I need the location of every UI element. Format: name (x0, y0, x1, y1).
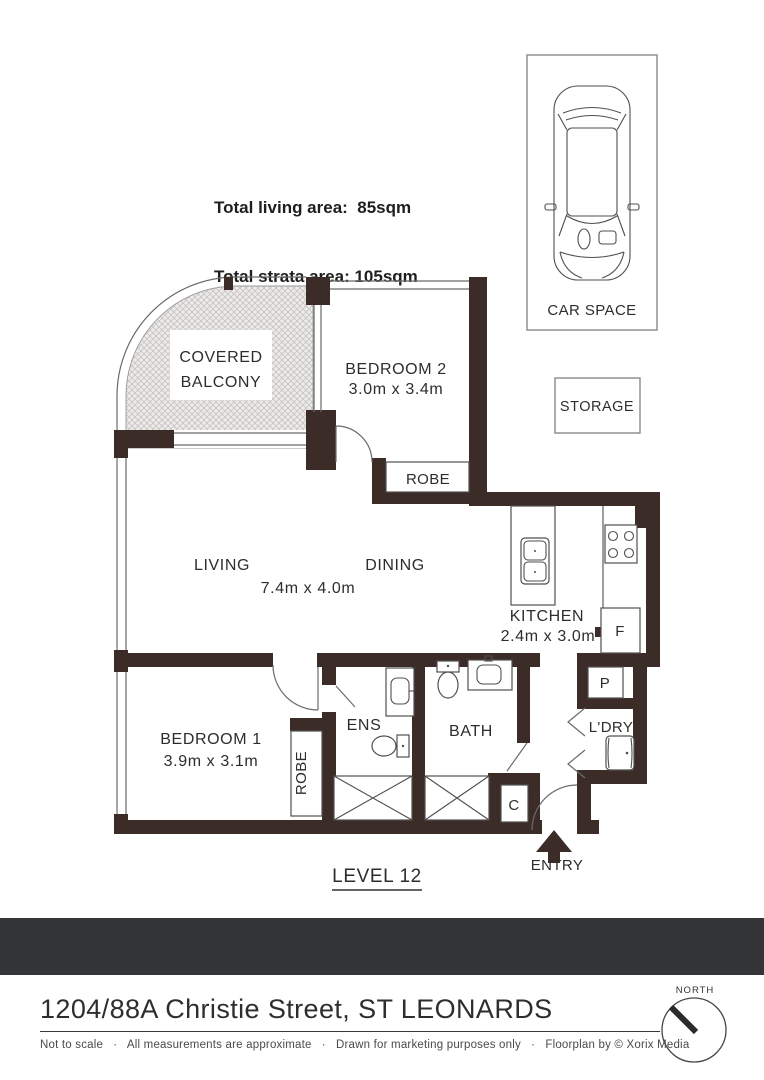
bath-toilet-icon (437, 661, 459, 698)
bedroom1-label: BEDROOM 1 (160, 731, 261, 748)
laundry-label: L'DRY (589, 719, 634, 736)
entry: ENTRY (531, 830, 584, 874)
level-indicator: LEVEL 12 (332, 866, 422, 890)
balcony-label-line1: COVERED (179, 349, 262, 366)
north-label: NORTH (676, 985, 715, 996)
bedroom2-door (336, 426, 372, 462)
bedroom1-door (273, 665, 318, 710)
ensuite: ENS (334, 668, 414, 820)
kitchen-dims: 2.4m x 3.0m (501, 628, 596, 645)
storage-box: STORAGE (555, 378, 640, 433)
bedroom2-label: BEDROOM 2 (345, 361, 446, 378)
pantry-label: P (600, 675, 610, 692)
property-address: 1204/88A Christie Street, ST LEONARDS (40, 994, 553, 1025)
laundry-doors (568, 708, 585, 778)
bedroom1-dims: 3.9m x 3.1m (164, 753, 259, 770)
storage-label: STORAGE (560, 399, 634, 415)
living-dining-dims: 7.4m x 4.0m (261, 580, 356, 597)
covered-balcony: COVERED BALCONY (117, 277, 313, 448)
ensuite-label: ENS (347, 717, 382, 734)
bath-door (507, 743, 527, 771)
bedroom2-robe-label: ROBE (406, 471, 450, 488)
dining-label: DINING (365, 557, 425, 574)
north-compass: NORTH (650, 975, 745, 1075)
compass-needle-icon (671, 1007, 696, 1032)
bath-label: BATH (449, 723, 493, 740)
floorplan-page: Total living area: 85sqm Total strata ar… (0, 0, 764, 1080)
balcony-label-line2: BALCONY (181, 374, 262, 391)
entry-label: ENTRY (531, 857, 584, 874)
floorplan-drawing: CAR SPACE STORAGE COVERED BALCONY (0, 0, 764, 910)
car-space-label: CAR SPACE (547, 302, 636, 319)
bedroom1-robe-label: ROBE (293, 751, 310, 795)
kitchen: F KITCHEN 2.4m x 3.0m (501, 506, 640, 653)
cooktop-icon (605, 525, 637, 563)
bathroom: BATH C (425, 656, 528, 822)
level-label: LEVEL 12 (332, 866, 422, 887)
fridge-label: F (615, 623, 625, 640)
cupboard-label: C (508, 797, 519, 814)
living-label: LIVING (194, 557, 250, 574)
bedroom2: BEDROOM 2 3.0m x 3.4m ROBE (345, 361, 469, 492)
ensuite-door (336, 686, 355, 707)
washing-machine-icon (606, 736, 634, 770)
bedroom1: BEDROOM 1 3.9m x 3.1m ROBE (160, 731, 322, 816)
car-space: CAR SPACE (527, 55, 657, 330)
living-dining: LIVING DINING 7.4m x 4.0m (194, 557, 425, 597)
ensuite-vanity-icon (386, 668, 414, 716)
bath-vanity-icon (468, 656, 512, 690)
ensuite-shower-icon (334, 776, 412, 820)
disclaimer-text: Not to scale · All measurements are appr… (40, 1039, 689, 1051)
ensuite-toilet-icon (372, 735, 409, 757)
divider-bar (0, 918, 764, 975)
address-rule (40, 1031, 660, 1032)
laundry: P L'DRY (588, 667, 634, 770)
bath-shower-icon (425, 776, 489, 820)
sink-icon (521, 538, 549, 584)
bedroom2-dims: 3.0m x 3.4m (349, 381, 444, 398)
kitchen-label: KITCHEN (510, 608, 584, 625)
